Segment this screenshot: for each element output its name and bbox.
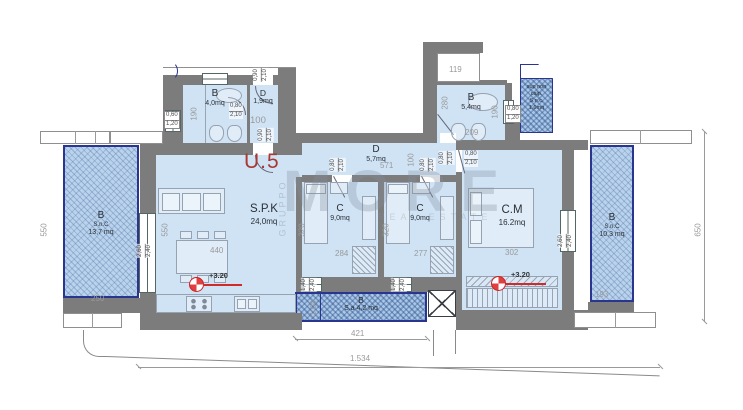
watermark-side-text: GRUPPO: [278, 179, 288, 236]
chair: [180, 231, 192, 239]
outline-shaft-right: [455, 330, 456, 354]
room-spk: [156, 155, 296, 313]
dim-190-bath1: 190: [191, 107, 199, 120]
room-label-snc: sup non calp. S.n.c. 1,6mq: [520, 84, 553, 113]
dim-284: 284: [335, 250, 348, 258]
non-walkable-notch: [520, 64, 553, 79]
room-label-bath1: B 4,0mq: [183, 88, 247, 108]
window-bath1: [202, 73, 228, 85]
window-size-label: 2,602,40: [137, 244, 153, 258]
door-size-label: 0,902,10: [258, 128, 274, 142]
neighbor-door-arc: [164, 62, 178, 80]
facade-box: [590, 130, 692, 144]
window-size-label: 1,402,40: [301, 278, 317, 292]
dim-550-spk: 550: [162, 223, 170, 236]
sink: [234, 296, 260, 312]
sofa-cushion: [162, 193, 180, 211]
dim-302: 302: [505, 249, 518, 257]
dim-line-1534: [138, 367, 660, 368]
room-label-balcony-left: B S.n.C 13,7 mq: [63, 210, 139, 238]
room-label-balcony-right: B S.n.C 10,3 mq: [590, 212, 634, 240]
facade-divider: [95, 131, 96, 144]
dim-650: 650: [695, 223, 703, 236]
window-size-label: 1,402,40: [391, 278, 407, 292]
facade-divider: [75, 131, 76, 144]
wall: [63, 298, 156, 313]
level-marker-line: [506, 283, 546, 285]
dim-550-left: 550: [41, 223, 49, 236]
toilet: [451, 123, 466, 141]
room-label-entry: D 1,9mq: [246, 88, 280, 107]
room-label-balcony-bottom: B S.a 4,2 mq: [295, 295, 427, 314]
level-marker-icon: [189, 277, 204, 292]
facade-divider: [615, 312, 616, 328]
wall: [163, 75, 296, 85]
wall: [278, 68, 296, 143]
dim-100-entry: 100: [250, 116, 266, 126]
wardrobe: [466, 288, 558, 308]
facade-divider: [92, 313, 93, 328]
facade-box: [110, 131, 163, 144]
outline-shaft-left: [433, 330, 434, 356]
toilet: [209, 125, 224, 142]
outline-corner-curve: [83, 338, 107, 357]
door-size-label: 0,902,10: [253, 68, 269, 82]
radiator: [352, 246, 376, 274]
sink-basin: [248, 299, 257, 309]
elevator-shaft: [428, 290, 456, 317]
window-size-label: 0,601,20: [164, 111, 180, 129]
watermark-sub-text: REAL ESTATE: [378, 212, 492, 222]
wall: [456, 310, 588, 330]
level-marker-line: [204, 284, 242, 286]
kitchen-counter: [156, 294, 296, 313]
dim-277: 277: [414, 250, 427, 258]
wall: [423, 42, 483, 53]
wall: [423, 45, 437, 143]
level-marker-value: +3.20: [209, 271, 228, 280]
radiator: [430, 246, 454, 274]
dim-1534: 1.534: [350, 355, 370, 363]
sink-basin: [237, 299, 246, 309]
sofa: [158, 188, 225, 214]
facade-divider: [640, 130, 641, 144]
level-marker-value: +3.20: [511, 270, 530, 279]
dim-193: 193: [595, 291, 608, 299]
floor-plan: 119 280 190 209 190 100 571 100 550 550 …: [0, 0, 743, 410]
dim-line-421: [295, 339, 427, 340]
chair: [197, 231, 209, 239]
stove: [186, 296, 212, 312]
outline-top: [163, 67, 296, 68]
window-size-label: 0,801,20: [505, 105, 521, 123]
dim-119: 119: [449, 66, 462, 74]
dim-line-650: [704, 132, 705, 322]
wall: [296, 133, 437, 143]
sofa-cushion: [203, 193, 221, 211]
dim-320-c2: 320: [383, 223, 391, 236]
wall: [140, 313, 302, 330]
room-label-bath2: B 5,4mq: [437, 92, 505, 112]
unit-label: U.5: [244, 150, 280, 174]
sofa-cushion: [182, 193, 200, 211]
chair: [214, 231, 226, 239]
dim-421: 421: [351, 330, 364, 338]
dim-209: 209: [465, 129, 478, 137]
dim-250: 250: [91, 295, 104, 303]
level-marker-icon: [491, 276, 506, 291]
bidet: [227, 125, 242, 142]
dim-440: 440: [210, 247, 223, 255]
wall: [588, 302, 634, 312]
window-size-label: 2,602,40: [558, 234, 574, 248]
